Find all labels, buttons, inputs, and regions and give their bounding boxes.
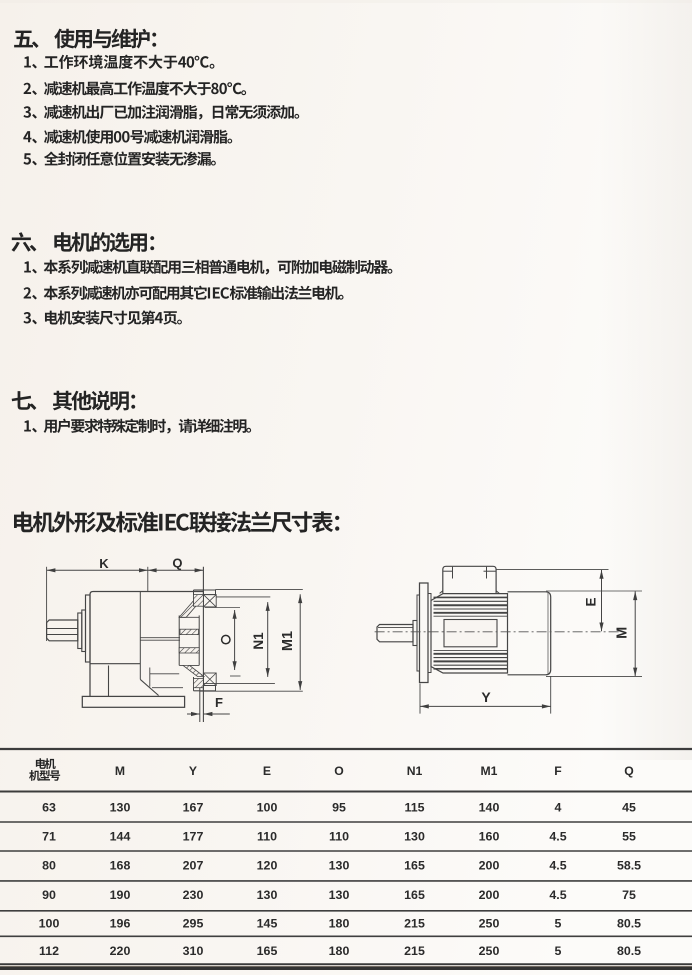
svg-text:112: 112	[39, 944, 59, 958]
svg-text:130: 130	[404, 830, 425, 844]
svg-text:M: M	[115, 764, 125, 778]
svg-text:167: 167	[183, 801, 204, 815]
svg-text:145: 145	[257, 916, 278, 930]
svg-text:80.5: 80.5	[617, 916, 641, 930]
svg-text:4.5: 4.5	[549, 859, 566, 873]
svg-text:71: 71	[42, 830, 56, 844]
svg-text:230: 230	[183, 888, 204, 902]
svg-text:165: 165	[257, 944, 278, 958]
svg-text:110: 110	[329, 830, 349, 844]
svg-text:177: 177	[183, 830, 204, 844]
svg-text:4: 4	[555, 801, 562, 815]
svg-text:55: 55	[622, 830, 636, 844]
svg-text:45: 45	[622, 801, 636, 815]
svg-text:180: 180	[329, 944, 350, 958]
svg-text:O: O	[334, 764, 343, 778]
svg-text:207: 207	[183, 859, 204, 873]
svg-text:F: F	[554, 764, 561, 778]
svg-text:N1: N1	[251, 632, 266, 650]
svg-text:E: E	[584, 597, 599, 606]
svg-text:M1: M1	[481, 764, 498, 778]
svg-text:K: K	[99, 556, 109, 571]
svg-text:165: 165	[404, 888, 425, 902]
svg-text:4.5: 4.5	[549, 888, 566, 902]
svg-text:5: 5	[555, 916, 562, 930]
svg-text:110: 110	[257, 830, 277, 844]
svg-text:58.5: 58.5	[617, 859, 641, 873]
svg-text:130: 130	[329, 859, 350, 873]
svg-text:180: 180	[329, 916, 350, 930]
svg-text:130: 130	[257, 888, 278, 902]
svg-text:75: 75	[622, 888, 636, 902]
svg-text:115: 115	[405, 801, 425, 815]
svg-text:295: 295	[183, 916, 204, 930]
svg-text:310: 310	[183, 944, 204, 958]
svg-text:N1: N1	[407, 764, 423, 778]
svg-text:144: 144	[110, 830, 131, 844]
svg-text:196: 196	[110, 916, 131, 930]
svg-text:M: M	[615, 627, 631, 639]
svg-text:200: 200	[479, 888, 500, 902]
svg-text:M1: M1	[280, 631, 296, 651]
svg-text:90: 90	[42, 888, 56, 902]
svg-text:63: 63	[42, 801, 56, 815]
svg-text:100: 100	[257, 801, 278, 815]
svg-text:160: 160	[479, 830, 500, 844]
svg-text:140: 140	[479, 801, 500, 815]
svg-text:Y: Y	[189, 764, 197, 778]
svg-text:130: 130	[329, 888, 350, 902]
svg-text:5: 5	[555, 944, 562, 958]
svg-text:80.5: 80.5	[617, 944, 641, 958]
svg-text:E: E	[263, 764, 271, 778]
svg-text:200: 200	[479, 859, 500, 873]
svg-text:165: 165	[404, 859, 425, 873]
svg-text:Q: Q	[624, 764, 633, 778]
svg-text:130: 130	[110, 801, 131, 815]
svg-text:250: 250	[479, 916, 500, 930]
svg-text:95: 95	[332, 801, 346, 815]
svg-text:220: 220	[110, 944, 131, 958]
svg-text:F: F	[215, 695, 223, 710]
svg-text:215: 215	[404, 916, 425, 930]
svg-text:250: 250	[479, 944, 500, 958]
svg-text:168: 168	[110, 859, 131, 873]
svg-text:Q: Q	[172, 556, 182, 571]
svg-text:190: 190	[110, 888, 131, 902]
svg-text:4.5: 4.5	[549, 830, 566, 844]
svg-text:Y: Y	[481, 689, 491, 705]
svg-text:120: 120	[257, 859, 278, 873]
svg-text:215: 215	[404, 944, 425, 958]
svg-text:80: 80	[42, 859, 56, 873]
svg-text:100: 100	[39, 916, 60, 930]
